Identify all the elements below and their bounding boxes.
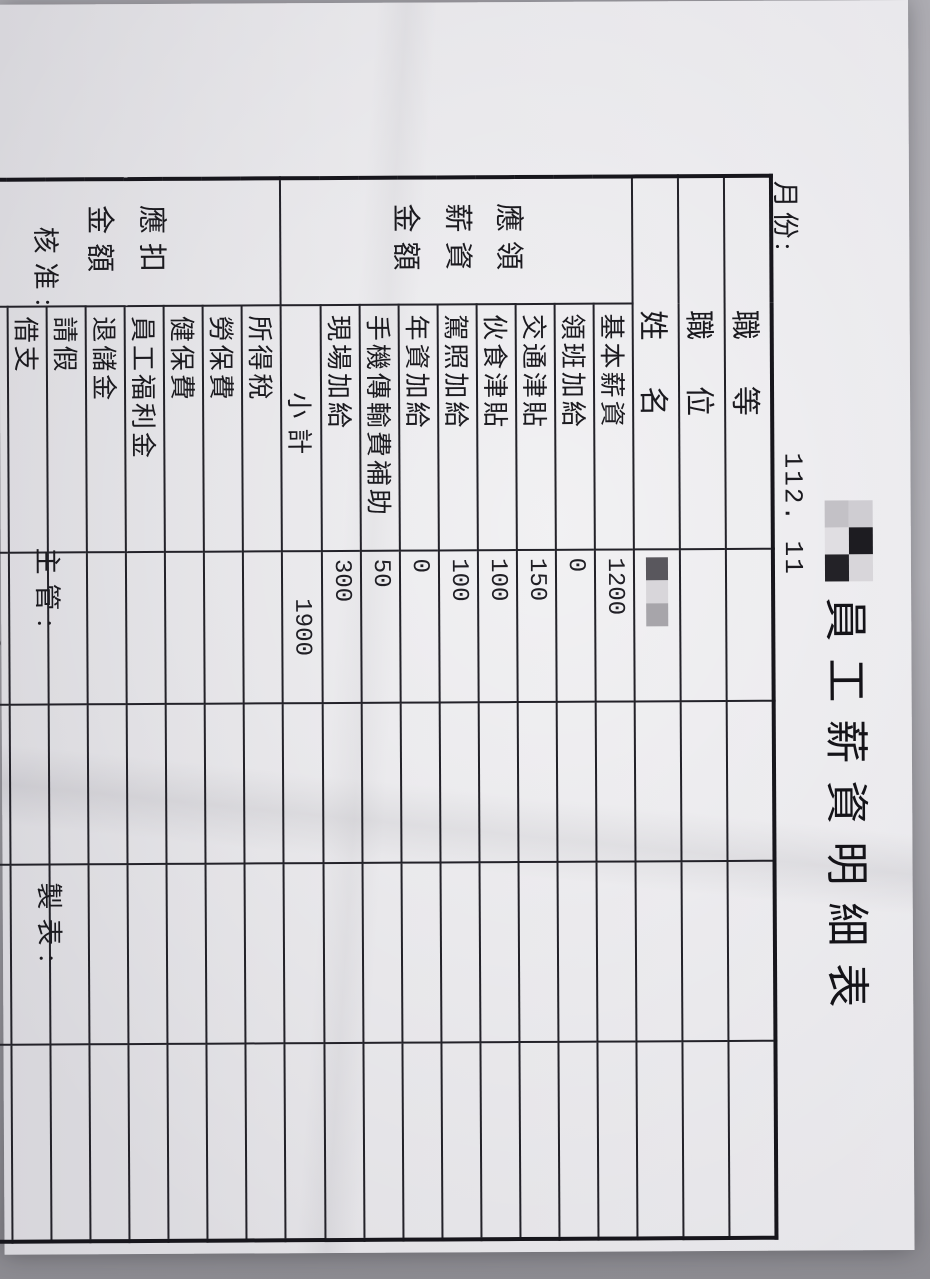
mosaic-square bbox=[849, 527, 873, 554]
row-label-subtotal: 小計 bbox=[281, 305, 322, 551]
table-row-subtotal: 小計 1900 bbox=[280, 178, 326, 1240]
salary-table: 職等 職位 姓名 bbox=[0, 174, 778, 1245]
cell-empty bbox=[635, 701, 682, 861]
table-row-income-tax: 應扣金額 所得稅 bbox=[241, 178, 286, 1240]
cell-empty bbox=[480, 862, 520, 1042]
table-row-advance: 借支 bbox=[7, 180, 52, 1242]
cell-empty bbox=[363, 1043, 403, 1240]
row-label-position: 職位 bbox=[678, 176, 726, 549]
value-license-bonus: 100 bbox=[439, 550, 479, 702]
value-health-insurance bbox=[165, 552, 205, 704]
cell-empty bbox=[441, 1042, 481, 1239]
value-seniority-bonus: 0 bbox=[400, 550, 440, 702]
mosaic-square bbox=[849, 554, 873, 581]
cell-empty bbox=[244, 703, 284, 863]
value-income-tax bbox=[243, 551, 283, 703]
company-name-redaction-mosaic bbox=[825, 500, 873, 581]
cell-empty bbox=[11, 1045, 51, 1242]
value-deduction-total: · 0 bbox=[0, 553, 10, 705]
table-row-transport-allowance: 交通津貼 150 bbox=[515, 177, 560, 1239]
row-label-base-salary: 基本薪資 bbox=[594, 303, 634, 549]
table-row-meal-allowance: 伙食津貼 100 bbox=[476, 177, 521, 1239]
cell-empty bbox=[284, 1043, 325, 1240]
cell-empty bbox=[50, 1044, 90, 1241]
table-row-health-insurance: 健保費 bbox=[163, 179, 208, 1241]
group-earnings: 應領薪資金額 bbox=[280, 176, 633, 305]
row-label-foreman-bonus: 領班加給 bbox=[555, 304, 595, 550]
row-label-welfare-fund: 員工福利金 bbox=[125, 306, 165, 552]
cell-empty bbox=[518, 702, 558, 862]
cell-empty bbox=[206, 863, 246, 1043]
cell-empty bbox=[401, 702, 441, 862]
cell-empty bbox=[441, 862, 481, 1042]
cell-empty bbox=[636, 861, 683, 1041]
cell-empty bbox=[89, 864, 129, 1044]
cell-empty bbox=[323, 703, 363, 863]
value-foreman-bonus: 0 bbox=[556, 550, 596, 702]
cell-rank-1 bbox=[726, 549, 774, 701]
row-label-meal-allowance: 伙食津貼 bbox=[477, 304, 517, 550]
row-label-leave: 請假 bbox=[47, 306, 87, 552]
supervisor-field: 主管: bbox=[30, 547, 69, 636]
cell-empty bbox=[728, 1041, 776, 1238]
cell-empty bbox=[480, 1042, 520, 1239]
cell-empty bbox=[89, 1044, 129, 1241]
table-row-seniority-bonus: 年資加給 0 bbox=[398, 177, 443, 1239]
page-title: 員工薪資明細表 bbox=[817, 597, 883, 1024]
cell-empty bbox=[402, 1042, 442, 1239]
cell-empty bbox=[245, 863, 285, 1043]
cell-empty bbox=[127, 704, 167, 864]
cell-empty bbox=[558, 1042, 598, 1239]
cell-name-redacted bbox=[634, 549, 681, 701]
mosaic-square bbox=[646, 557, 668, 580]
group-deductions-label: 應扣金額 bbox=[72, 204, 176, 283]
mosaic-square bbox=[849, 500, 873, 527]
table-row-foreman-bonus: 領班加給 0 bbox=[554, 177, 599, 1239]
row-label-seniority-bonus: 年資加給 bbox=[399, 304, 439, 550]
cell-empty bbox=[519, 1042, 559, 1239]
value-site-bonus: 300 bbox=[322, 551, 362, 703]
cell-empty bbox=[682, 861, 729, 1041]
row-label-license-bonus: 駕照加給 bbox=[438, 304, 478, 550]
value-welfare-fund bbox=[126, 552, 166, 704]
value-transport-allowance: 150 bbox=[517, 550, 557, 702]
photo-background: 員工薪資明細表 月份: 112. 11 職等 職位 姓名 bbox=[0, 0, 930, 1279]
row-label-health-insurance: 健保費 bbox=[164, 306, 204, 552]
cell-empty bbox=[49, 704, 89, 864]
cell-empty bbox=[728, 861, 776, 1041]
cell-empty bbox=[636, 1041, 683, 1238]
table-row-leave: 請假 bbox=[46, 179, 91, 1241]
table-row-mobile-subsidy: 手機傳輸費補助 50 bbox=[359, 178, 404, 1240]
row-label-rank: 職等 bbox=[724, 176, 773, 549]
row-label-name: 姓名 bbox=[632, 176, 680, 549]
cell-empty bbox=[402, 862, 442, 1042]
cell-empty bbox=[362, 703, 402, 863]
table-row-base-salary: 應領薪資金額 基本薪資 1200 bbox=[593, 176, 638, 1238]
cell-empty bbox=[558, 862, 598, 1042]
cell-empty bbox=[0, 1045, 12, 1242]
mosaic-square bbox=[646, 580, 668, 603]
cell-empty bbox=[324, 1043, 364, 1240]
month-value: 112. 11 bbox=[777, 453, 808, 576]
table-row-welfare-fund: 員工福利金 bbox=[124, 179, 169, 1241]
cell-empty bbox=[205, 703, 245, 863]
payslip-paper: 員工薪資明細表 月份: 112. 11 職等 職位 姓名 bbox=[0, 0, 915, 1255]
cell-empty bbox=[166, 704, 206, 864]
table-row-name: 姓名 bbox=[632, 176, 684, 1238]
row-label-transport-allowance: 交通津貼 bbox=[516, 304, 556, 550]
cell-empty bbox=[682, 1041, 729, 1238]
row-label-deduction-total: 合計 bbox=[0, 307, 9, 553]
value-subtotal: 1900 bbox=[282, 551, 323, 703]
group-earnings-label: 應領薪資金額 bbox=[379, 202, 534, 281]
table-row-license-bonus: 駕照加給 100 bbox=[437, 177, 482, 1239]
value-labor-insurance bbox=[204, 551, 244, 703]
employee-name-redaction-mosaic bbox=[646, 557, 669, 700]
cell-empty bbox=[363, 863, 403, 1043]
row-label-site-bonus: 現場加給 bbox=[321, 305, 361, 551]
cell-empty bbox=[167, 1044, 207, 1241]
month-label: 月份: bbox=[770, 181, 800, 255]
cell-empty bbox=[681, 701, 728, 861]
cell-empty bbox=[519, 862, 559, 1042]
cell-empty bbox=[128, 1044, 168, 1241]
table-row-labor-insurance: 勞保費 bbox=[202, 178, 247, 1240]
table-row-position: 職位 bbox=[678, 176, 730, 1238]
mosaic-square bbox=[825, 527, 849, 554]
cell-empty bbox=[0, 705, 11, 865]
mosaic-square bbox=[646, 603, 668, 626]
cell-empty bbox=[479, 702, 519, 862]
cell-empty bbox=[597, 861, 637, 1041]
cell-empty bbox=[596, 701, 636, 861]
cell-empty bbox=[597, 1041, 637, 1238]
mosaic-square bbox=[825, 500, 849, 527]
cell-position-1 bbox=[680, 549, 727, 701]
cell-empty bbox=[0, 865, 11, 1045]
title-line: 員工薪資明細表 bbox=[823, 500, 884, 1024]
mosaic-square bbox=[825, 554, 849, 581]
cell-empty bbox=[128, 864, 168, 1044]
cell-empty bbox=[284, 863, 325, 1043]
cell-empty bbox=[206, 1043, 246, 1240]
cell-empty bbox=[10, 705, 50, 865]
prepared-by-field: 製表: bbox=[32, 882, 71, 971]
cell-empty bbox=[245, 1043, 285, 1240]
row-label-advance: 借支 bbox=[8, 307, 48, 553]
approved-by-field: 核准: bbox=[28, 226, 67, 315]
cell-empty bbox=[440, 702, 480, 862]
cell-empty bbox=[167, 864, 207, 1044]
value-meal-allowance: 100 bbox=[478, 550, 518, 702]
value-base-salary: 1200 bbox=[595, 549, 635, 701]
cell-empty bbox=[324, 863, 364, 1043]
row-label-labor-insurance: 勞保費 bbox=[203, 305, 243, 551]
cell-empty bbox=[88, 704, 128, 864]
cell-empty bbox=[727, 701, 775, 861]
row-label-pension-savings: 退儲金 bbox=[86, 306, 126, 552]
cell-empty bbox=[283, 703, 324, 863]
row-label-income-tax: 所得稅 bbox=[242, 305, 282, 551]
table-row-site-bonus: 現場加給 300 bbox=[320, 178, 365, 1240]
value-mobile-subsidy: 50 bbox=[361, 551, 401, 703]
cell-empty bbox=[557, 702, 597, 862]
table-row-pension-savings: 退儲金 bbox=[85, 179, 130, 1241]
row-label-mobile-subsidy: 手機傳輸費補助 bbox=[360, 305, 400, 551]
value-pension-savings bbox=[87, 552, 127, 704]
table-row-rank: 職等 bbox=[724, 176, 777, 1238]
